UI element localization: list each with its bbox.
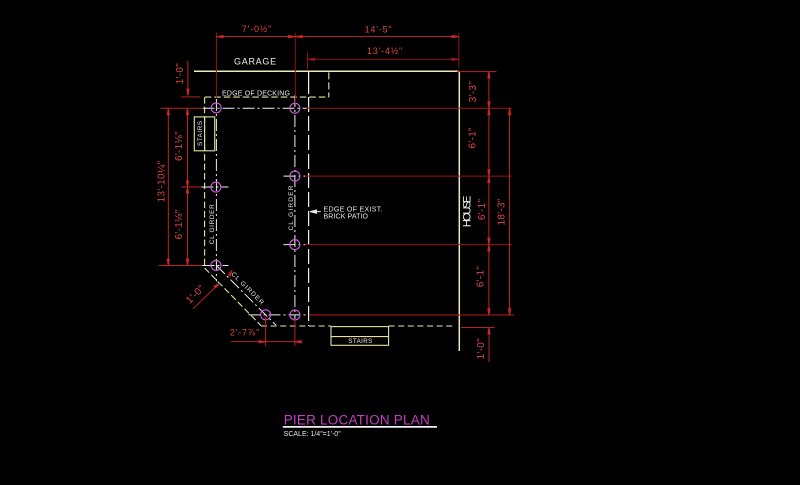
svg-text:EDGE OF DECKING: EDGE OF DECKING (222, 90, 290, 97)
svg-text:6'-1": 6'-1" (477, 199, 488, 221)
svg-text:HOUSE: HOUSE (461, 196, 473, 228)
svg-text:3'-3": 3'-3" (468, 81, 479, 103)
svg-text:7'-0½": 7'-0½" (242, 24, 272, 34)
svg-text:CL GIRDER: CL GIRDER (209, 204, 216, 244)
svg-text:EDGE OF EXIST.: EDGE OF EXIST. (324, 206, 383, 213)
svg-text:6'-1⅛": 6'-1⅛" (174, 131, 185, 161)
svg-text:14'-5": 14'-5" (365, 25, 393, 35)
svg-text:6'-1": 6'-1" (476, 266, 487, 288)
svg-text:2'-7⅞": 2'-7⅞" (230, 328, 260, 338)
svg-text:BRICK PATIO: BRICK PATIO (324, 214, 369, 221)
svg-text:STAIRS: STAIRS (348, 338, 372, 345)
svg-text:6'-1⅛": 6'-1⅛" (174, 209, 185, 239)
svg-text:SCALE: 1/4"=1'-0": SCALE: 1/4"=1'-0" (284, 431, 342, 438)
svg-text:1'-0": 1'-0" (175, 63, 186, 85)
svg-text:1'-0": 1'-0" (476, 338, 487, 360)
svg-text:13'-10¼": 13'-10¼" (155, 160, 167, 202)
svg-text:GARAGE: GARAGE (234, 57, 277, 67)
svg-text:18'-3": 18'-3" (497, 198, 508, 225)
svg-text:STAIRS: STAIRS (197, 121, 204, 146)
svg-text:6'-1": 6'-1" (467, 127, 478, 149)
svg-text:PIER LOCATION PLAN: PIER LOCATION PLAN (284, 412, 432, 427)
svg-text:CL GIRDER: CL GIRDER (288, 185, 295, 230)
svg-text:13'-4½": 13'-4½" (367, 46, 403, 56)
